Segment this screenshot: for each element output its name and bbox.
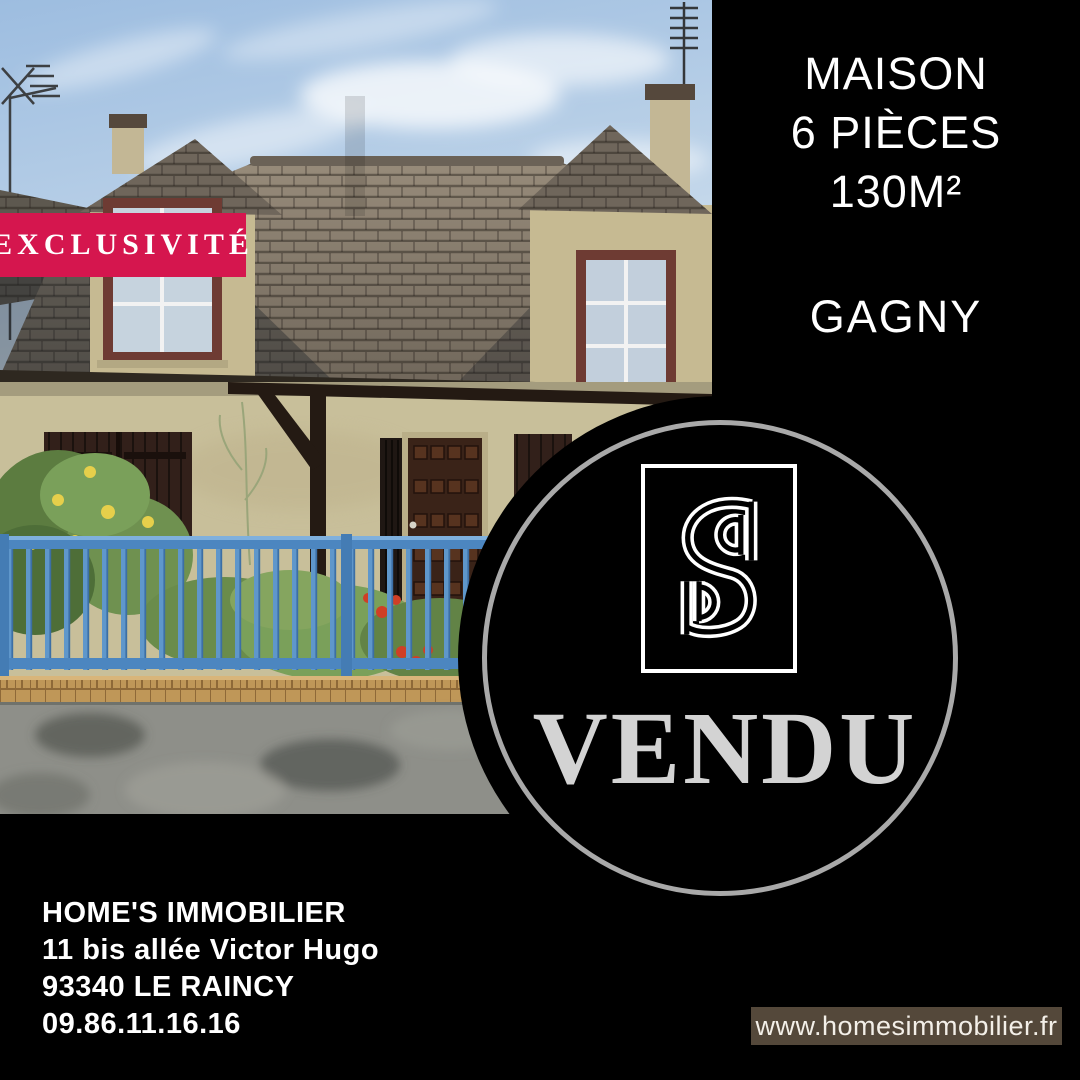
sold-label: VENDU xyxy=(450,697,1000,801)
agency-logo xyxy=(641,464,797,673)
exclusivity-badge: EXCLUSIVITÉ xyxy=(0,213,246,277)
listing-area: 130M² xyxy=(712,162,1080,221)
listing-city: GAGNY xyxy=(712,287,1080,346)
real-estate-post: EXCLUSIVITÉ MAISON 6 PIÈCES 130M² GAGNY xyxy=(0,0,1080,1080)
agency-name: HOME'S IMMOBILIER xyxy=(42,895,379,932)
agency-address-line1: 11 bis allée Victor Hugo xyxy=(42,932,379,969)
sd-monogram-icon xyxy=(645,468,793,669)
agency-phone: 09.86.11.16.16 xyxy=(42,1006,379,1043)
listing-specs: MAISON 6 PIÈCES 130M² xyxy=(712,44,1080,221)
agency-address-line2: 93340 LE RAINCY xyxy=(42,969,379,1006)
website-url: www.homesimmobilier.fr xyxy=(755,1011,1057,1042)
listing-type: MAISON xyxy=(712,44,1080,103)
exclusivity-badge-label: EXCLUSIVITÉ xyxy=(0,228,254,262)
website-bar: www.homesimmobilier.fr xyxy=(751,1007,1062,1045)
listing-rooms: 6 PIÈCES xyxy=(712,103,1080,162)
agency-block: HOME'S IMMOBILIER 11 bis allée Victor Hu… xyxy=(42,895,379,1043)
